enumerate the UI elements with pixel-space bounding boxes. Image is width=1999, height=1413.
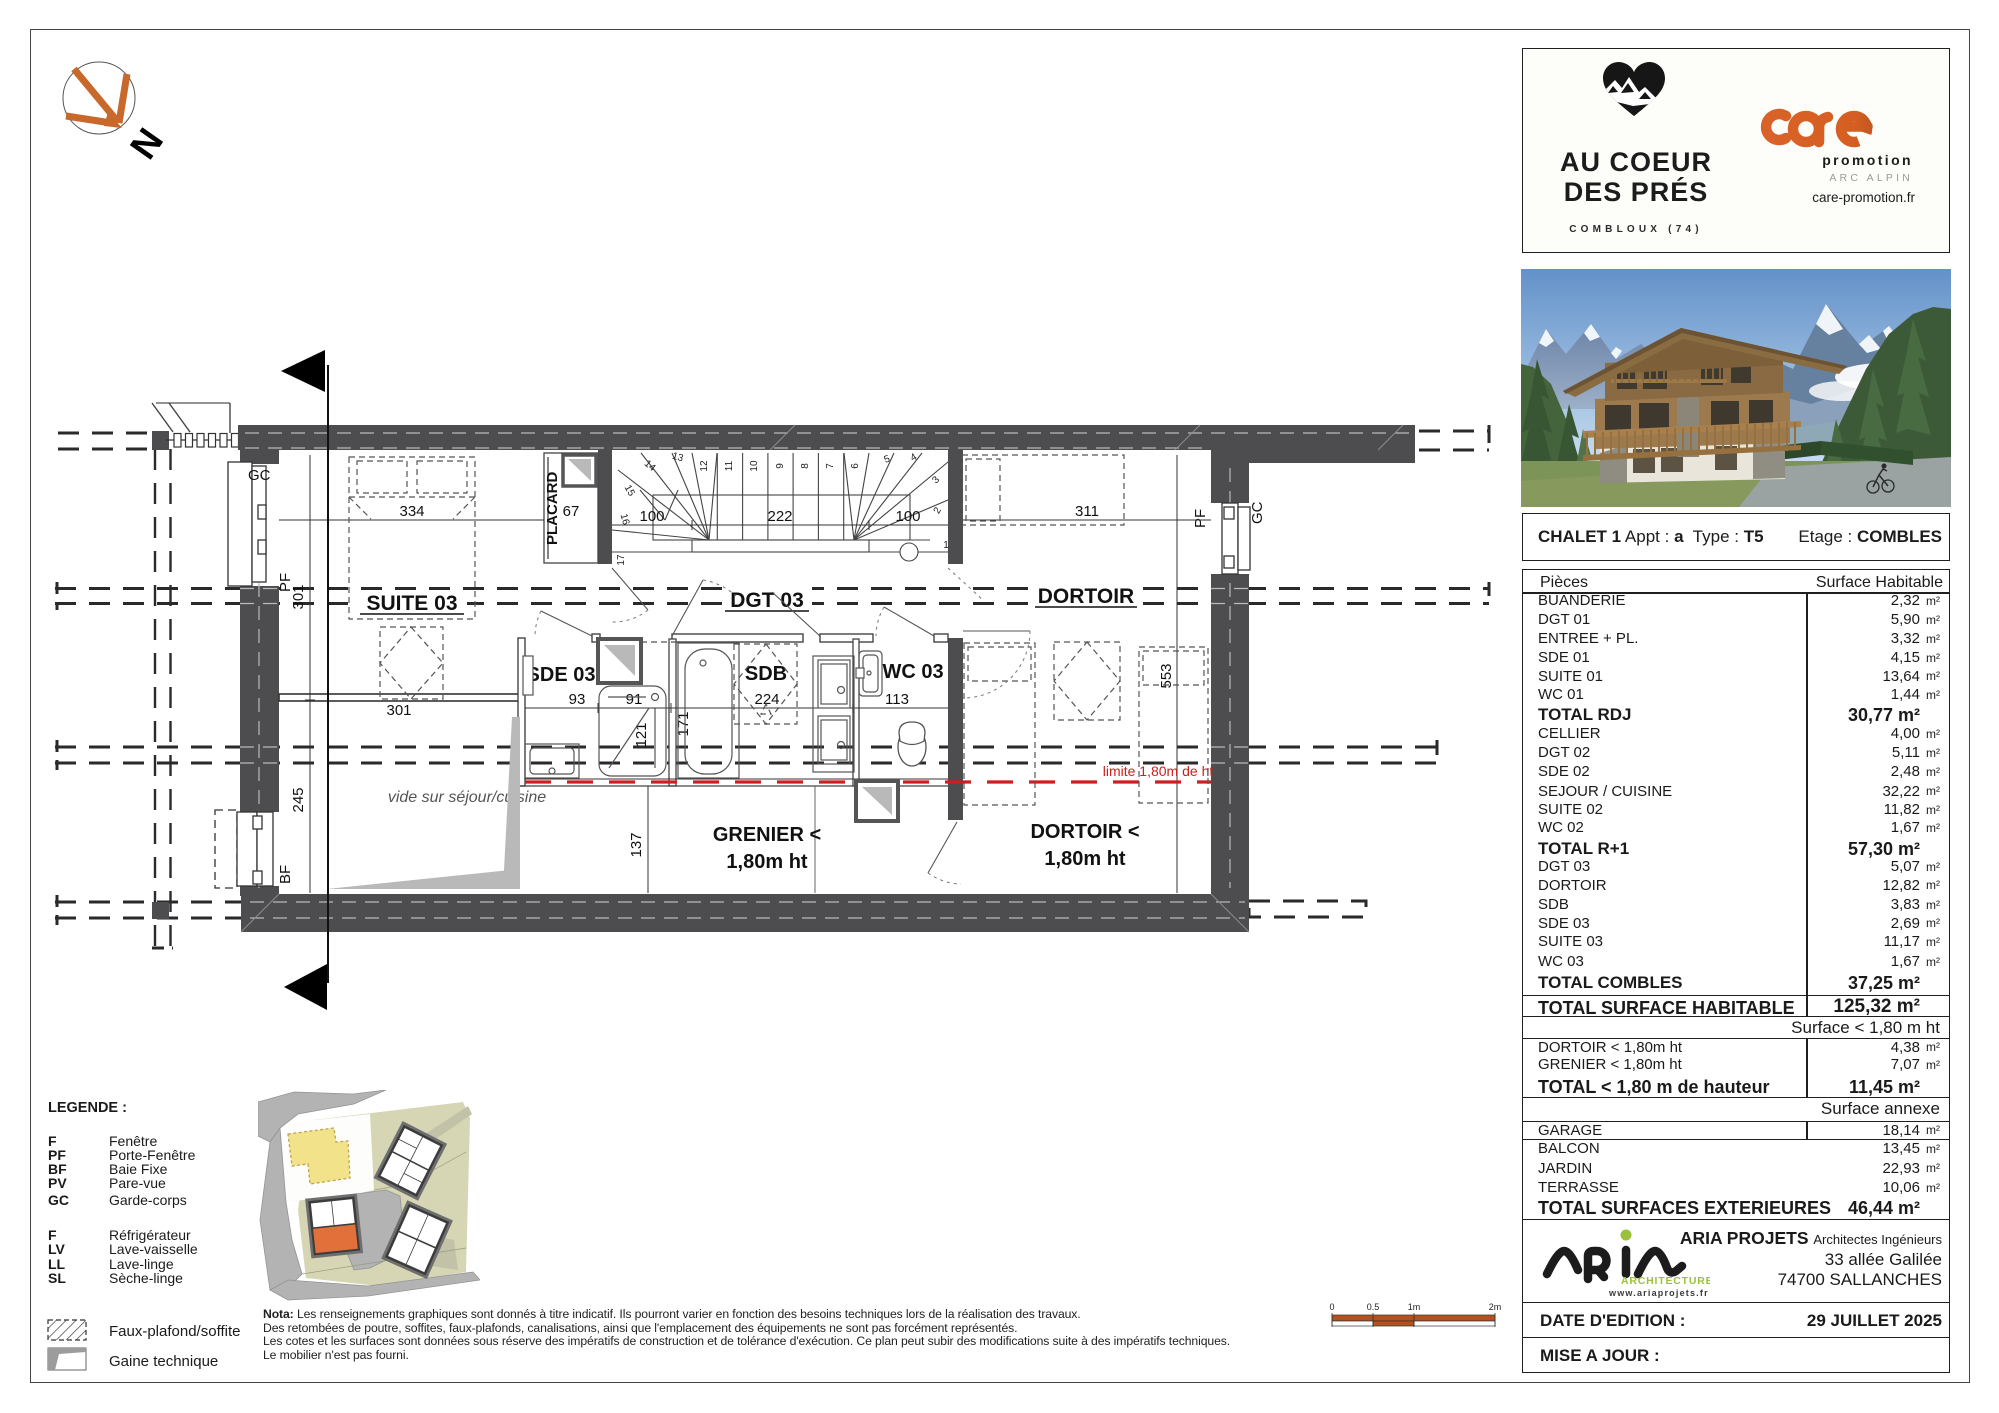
svg-text:334: 334: [399, 503, 424, 520]
svg-text:6: 6: [850, 463, 861, 469]
svg-text:7: 7: [825, 463, 836, 469]
svg-text:GC: GC: [248, 467, 271, 484]
svg-text:SUITE 03: SUITE 03: [366, 592, 457, 615]
svg-text:WC 03: WC 03: [882, 661, 943, 683]
svg-text:311: 311: [1075, 503, 1099, 520]
svg-text:PLACARD: PLACARD: [544, 472, 561, 545]
svg-text:1m: 1m: [1408, 1302, 1421, 1312]
svg-text:13: 13: [671, 451, 685, 465]
svg-text:9: 9: [775, 463, 786, 469]
svg-text:137: 137: [628, 832, 645, 857]
svg-text:11: 11: [724, 460, 735, 471]
svg-text:DORTOIR <: DORTOIR <: [1030, 821, 1139, 843]
svg-text:8: 8: [800, 463, 811, 469]
svg-text:245: 245: [290, 787, 307, 812]
svg-text:SDB: SDB: [745, 663, 787, 685]
svg-text:2m: 2m: [1489, 1302, 1502, 1312]
svg-text:DORTOIR: DORTOIR: [1038, 585, 1134, 608]
svg-text:BF: BF: [277, 865, 294, 884]
svg-text:91: 91: [626, 691, 643, 708]
svg-text:16: 16: [618, 513, 632, 527]
svg-text:SDE 03: SDE 03: [527, 664, 596, 686]
svg-text:2: 2: [932, 505, 945, 516]
svg-text:222: 222: [767, 508, 792, 525]
svg-text:DGT 03: DGT 03: [730, 589, 804, 612]
svg-text:1,80m ht: 1,80m ht: [726, 851, 807, 873]
svg-text:GC: GC: [1249, 501, 1266, 524]
svg-text:15: 15: [622, 483, 637, 499]
svg-text:301: 301: [386, 702, 411, 719]
svg-text:301: 301: [290, 584, 307, 609]
svg-text:limite 1,80m de ht: limite 1,80m de ht: [1103, 763, 1214, 779]
svg-text:3: 3: [930, 474, 942, 486]
svg-text:17: 17: [616, 554, 627, 566]
svg-text:10: 10: [749, 460, 760, 472]
svg-text:GRENIER <: GRENIER <: [713, 824, 821, 846]
svg-text:vide sur séjour/cuisine: vide sur séjour/cuisine: [388, 789, 546, 806]
svg-text:12: 12: [699, 460, 710, 472]
svg-text:1,80m ht: 1,80m ht: [1044, 848, 1125, 870]
svg-text:ARCHITECTURE: ARCHITECTURE: [1621, 1275, 1710, 1287]
svg-text:0.5: 0.5: [1367, 1302, 1380, 1312]
svg-text:121: 121: [633, 722, 650, 747]
svg-text:67: 67: [563, 503, 580, 520]
svg-text:100: 100: [639, 508, 664, 525]
svg-text:93: 93: [569, 691, 586, 708]
svg-text:N: N: [122, 121, 171, 166]
svg-text:1: 1: [943, 540, 949, 551]
svg-text:100: 100: [895, 508, 920, 525]
svg-text:0: 0: [1329, 1302, 1334, 1312]
svg-text:www.ariaprojets.fr: www.ariaprojets.fr: [1608, 1288, 1709, 1298]
svg-text:PF: PF: [1192, 509, 1209, 528]
svg-text:113: 113: [885, 691, 909, 708]
